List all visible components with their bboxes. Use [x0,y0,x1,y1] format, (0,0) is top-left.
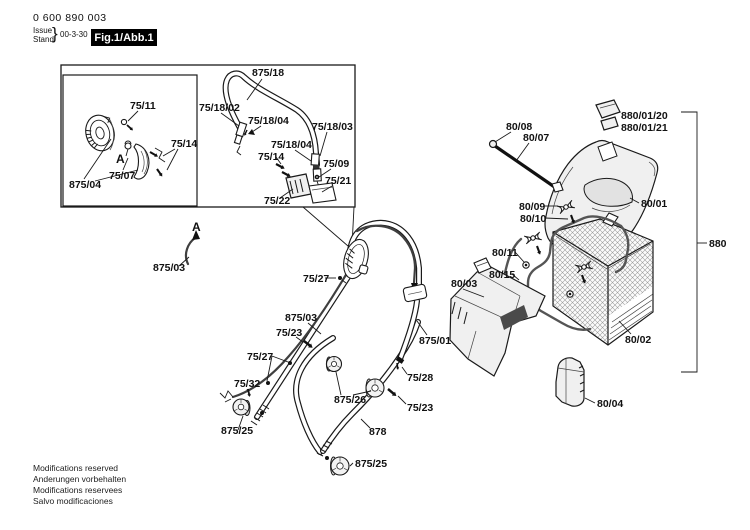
screw-75-27-b [266,381,270,385]
fixing-knob-bottom [331,457,350,475]
callout-80-15: 80/15 [489,269,515,281]
callout-75-07: 75/07 [109,170,135,182]
callout-875-25-left: 875/25 [221,425,253,437]
callout-75-09: 75/09 [323,158,349,170]
callout-875-26: 875/26 [334,394,366,406]
callout-875-03-main: 875/03 [285,312,317,324]
footer-note-fr: Modifications reservees [33,485,122,495]
fixing-knob-pair-a [326,357,341,372]
callout-75-32: 75/32 [234,378,260,390]
callout-80-10: 80/10 [520,213,546,225]
wire-nut-b [567,291,573,297]
callout-75-28: 75/28 [407,372,433,384]
callout-80-02: 80/02 [625,334,651,346]
callout-80-03: 80/03 [451,278,477,290]
footer-note-es: Salvo modificaciones [33,496,113,506]
callout-75-27-upper: 75/27 [303,273,329,285]
callout-75-11: 75/11 [130,100,156,112]
handle-clamp [403,284,427,302]
callout-75-22: 75/22 [264,195,290,207]
callout-875-03-a: 875/03 [153,262,185,274]
parts-diagram-page: 0 600 890 003 Issue Stand } 00-3-30 Fig.… [0,0,750,530]
footer-note-en: Modifications reserved [33,463,118,473]
screw-75-27-upper [338,276,342,280]
callout-875-25-bottom: 875/25 [355,458,387,470]
callout-75-21: 75/21 [325,175,351,187]
callout-875-01: 875/01 [419,335,451,347]
callout-detail-a-inset: A [116,152,125,166]
callout-878: 878 [369,426,387,438]
callout-75-18-02: 75/18/02 [199,102,240,114]
callout-875-04: 875/04 [69,179,101,191]
cable-detail-outer-box [61,65,355,246]
grass-catcher-assembly [450,100,658,406]
pulley-bolt [121,119,126,124]
callout-detail-a-cable: A [192,220,201,234]
callout-75-18-04-a: 75/18/04 [248,115,289,127]
callout-80-09: 80/09 [519,201,545,213]
callout-75-14-cable: 75/14 [258,151,284,163]
callout-80-01: 80/01 [641,198,667,210]
callout-75-18-04-b: 75/18/04 [271,139,312,151]
handle-assembly [220,223,427,475]
callout-875-18: 875/18 [252,67,284,79]
callout-880-01-21: 880/01/21 [621,122,668,134]
callout-80-07: 80/07 [523,132,549,144]
callout-80-11: 80/11 [492,247,518,259]
callout-880-01-20: 880/01/20 [621,110,668,122]
footer-note-de: Anderungen vorbehalten [33,474,126,484]
spring-knob [125,143,131,149]
callout-880: 880 [709,238,727,250]
screw-75-27-a [288,361,292,365]
pointer-wedge [303,207,354,246]
cable-detail-a [186,230,200,264]
lid-rod [495,146,556,188]
lid-flap-a [596,100,620,118]
group-bracket-880 [681,112,707,372]
exploded-parts-diagram: 875/1875/18/0275/18/0475/18/0375/18/0475… [0,0,750,530]
fixing-knob-pair-b [366,379,384,397]
callout-75-23-mid: 75/23 [276,327,302,339]
wire-nut-a [523,262,529,268]
callout-75-18-03: 75/18/03 [312,121,353,133]
deflector-guard [556,358,584,406]
callout-80-04: 80/04 [597,398,623,410]
fixing-knob-left [233,399,250,416]
callout-75-23-right: 75/23 [407,402,433,414]
callout-75-27-lower: 75/27 [247,351,273,363]
lid-flap-b [601,117,618,130]
callout-75-14-inset: 75/14 [171,138,197,150]
